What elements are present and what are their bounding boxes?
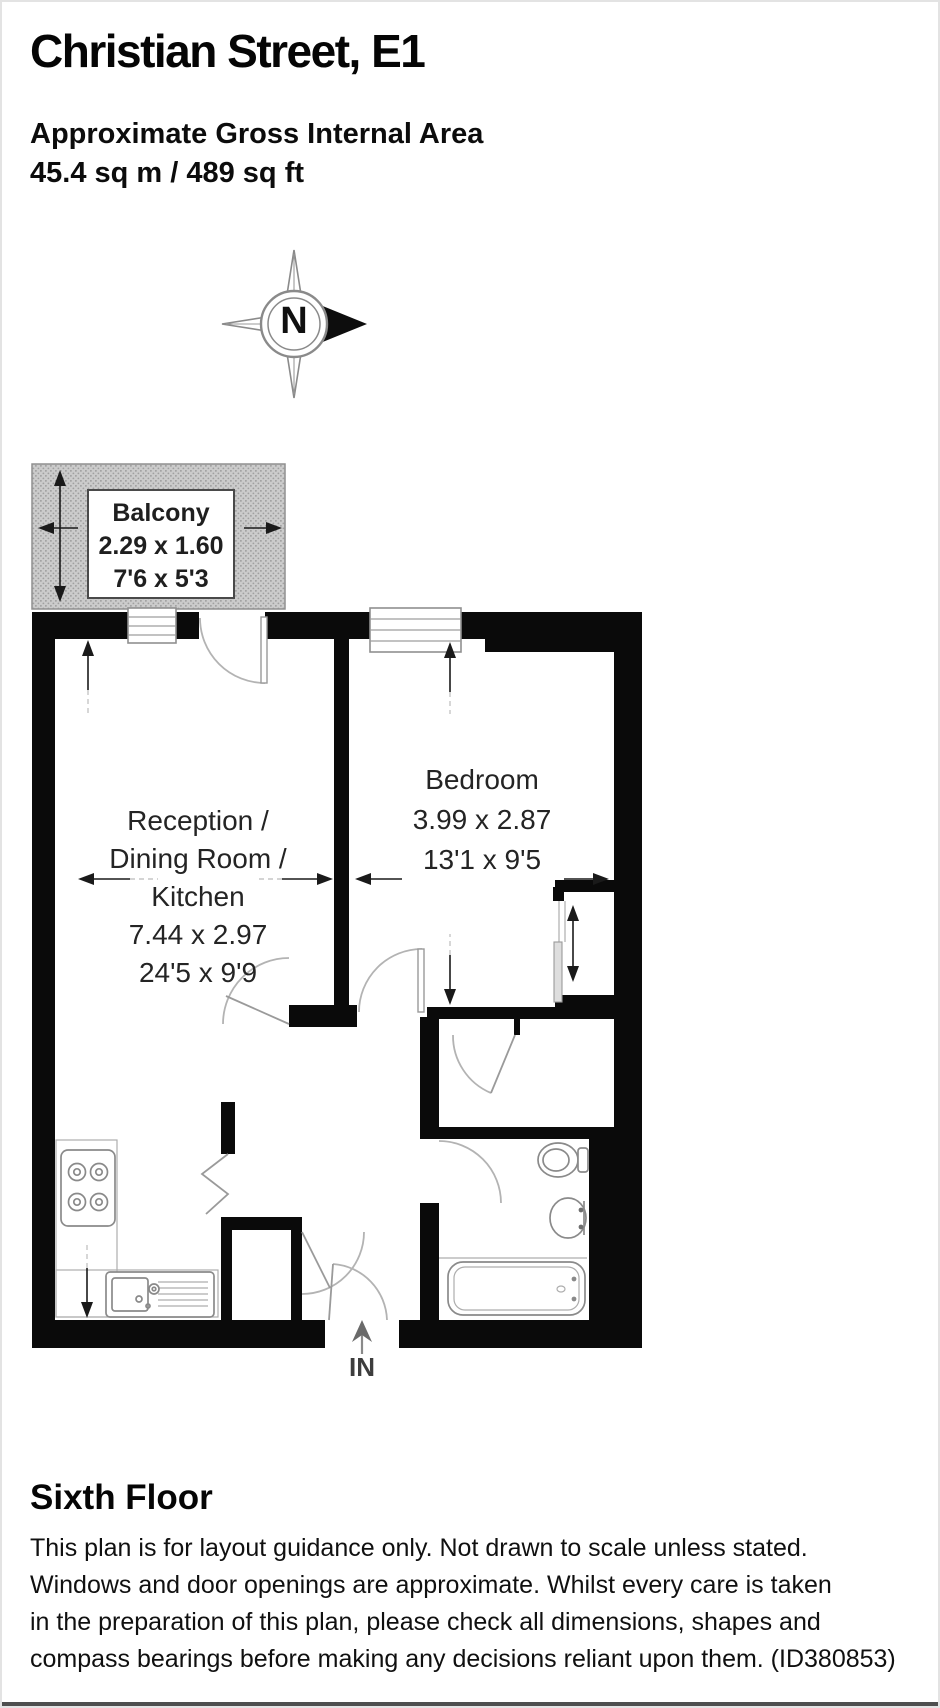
reception-line-3: Kitchen xyxy=(48,878,348,916)
bedroom-door-swing xyxy=(359,949,424,1012)
bedroom-dim-metric: 3.99 x 2.87 xyxy=(362,800,602,840)
balcony-name: Balcony xyxy=(89,497,233,530)
area-value: 45.4 sq m / 489 sq ft xyxy=(30,157,304,190)
kitchen-sink xyxy=(106,1272,214,1317)
reception-line-1: Reception / xyxy=(48,802,348,840)
entrance-arrow-icon xyxy=(352,1320,372,1354)
floor-label: Sixth Floor xyxy=(30,1478,213,1518)
disclaimer-line-2: Windows and door openings are approximat… xyxy=(30,1567,914,1604)
page-title: Christian Street, E1 xyxy=(30,24,424,78)
bedroom-dim-imperial: 13'1 x 9'5 xyxy=(362,840,602,880)
kitchen-bifold-door xyxy=(202,1154,228,1214)
reception-dim-metric: 7.44 x 2.97 xyxy=(48,916,348,954)
cupboard-door-swing xyxy=(453,1035,515,1093)
disclaimer-line-3: in the preparation of this plan, please … xyxy=(30,1604,914,1641)
entry-door-swing xyxy=(329,1264,387,1320)
compass-north-label: N xyxy=(272,300,316,343)
bedroom-name: Bedroom xyxy=(362,760,602,800)
floorplan-page: Christian Street, E1 Approximate Gross I… xyxy=(0,0,940,1708)
area-heading: Approximate Gross Internal Area xyxy=(30,118,483,151)
disclaimer-text: This plan is for layout guidance only. N… xyxy=(30,1530,914,1678)
bottom-border-strip xyxy=(2,1702,940,1708)
balcony-label: Balcony 2.29 x 1.60 7'6 x 5'3 xyxy=(87,489,235,599)
reception-dim-imperial: 24'5 x 9'9 xyxy=(48,954,348,992)
entrance-label: IN xyxy=(330,1352,394,1383)
entry-cupboard-door-swing xyxy=(302,1232,364,1294)
basin xyxy=(550,1198,586,1238)
wardrobe xyxy=(554,901,565,1002)
reception-line-2: Dining Room / xyxy=(48,840,348,878)
toilet xyxy=(538,1143,588,1177)
balcony-dim-metric: 2.29 x 1.60 xyxy=(89,530,233,563)
bathtub xyxy=(439,1258,587,1315)
window-bedroom xyxy=(370,608,461,652)
bathroom-door-swing xyxy=(439,1141,501,1203)
disclaimer-line-4: compass bearings before making any decis… xyxy=(30,1641,914,1678)
bedroom-label: Bedroom 3.99 x 2.87 13'1 x 9'5 xyxy=(362,760,602,880)
reception-label: Reception / Dining Room / Kitchen 7.44 x… xyxy=(48,802,348,992)
disclaimer-line-1: This plan is for layout guidance only. N… xyxy=(30,1530,914,1567)
balcony-door-swing xyxy=(200,617,267,683)
window-reception xyxy=(128,608,176,643)
balcony-dim-imperial: 7'6 x 5'3 xyxy=(89,563,233,596)
hob xyxy=(61,1150,115,1226)
